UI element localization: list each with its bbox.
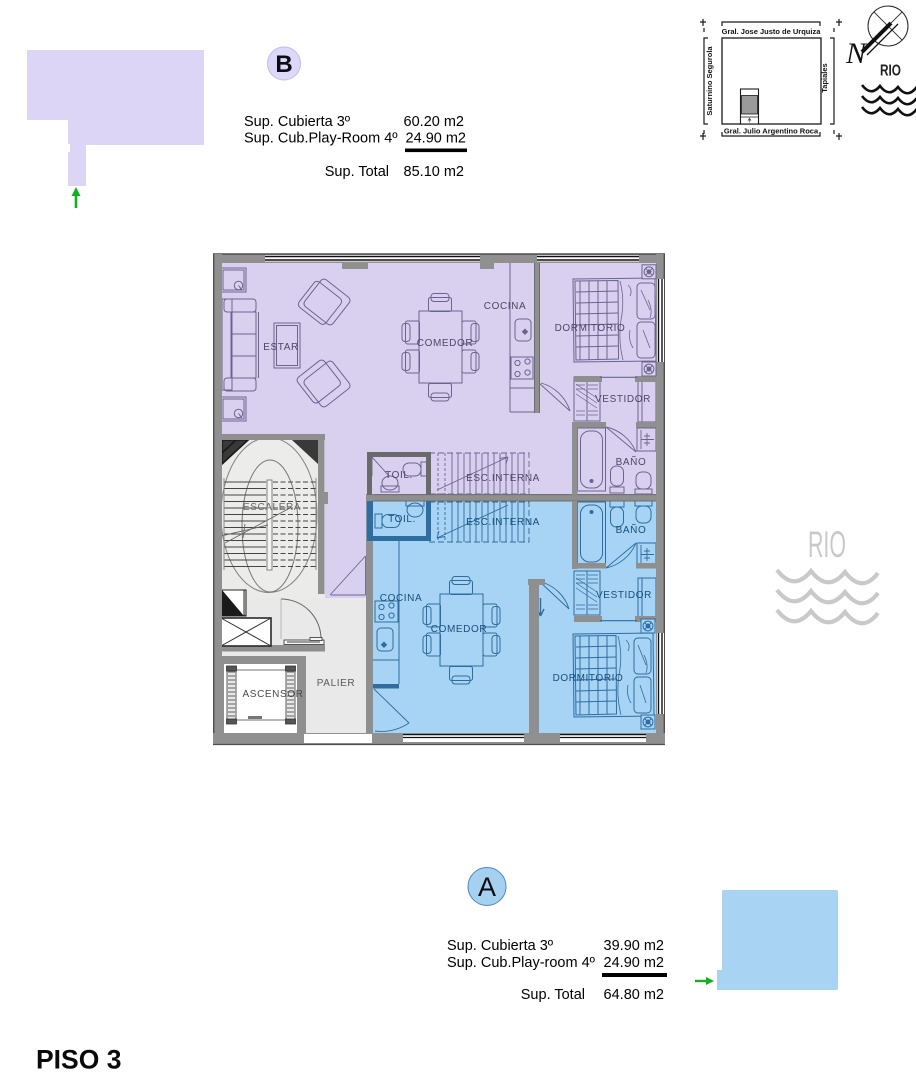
svg-text:PISO 3: PISO 3: [36, 1045, 121, 1075]
svg-text:Gral. Jose Justo de Urquiza: Gral. Jose Justo de Urquiza: [722, 27, 822, 36]
svg-text:ESTAR: ESTAR: [263, 342, 299, 353]
svg-text:BAÑO: BAÑO: [616, 523, 647, 536]
svg-text:24.90 m2: 24.90 m2: [604, 955, 664, 971]
svg-text:VESTIDOR: VESTIDOR: [596, 590, 652, 601]
svg-text:85.10 m2: 85.10 m2: [404, 164, 464, 180]
svg-text:ESC.INTERNA: ESC.INTERNA: [466, 517, 540, 528]
svg-text:ASCENSOR: ASCENSOR: [243, 689, 304, 700]
svg-text:Sup. Total: Sup. Total: [325, 164, 389, 180]
svg-text:Gral. Julio Argentino Roca: Gral. Julio Argentino Roca: [724, 127, 819, 136]
svg-text:Sup. Cubierta 3º: Sup. Cubierta 3º: [447, 938, 554, 954]
svg-text:RIO: RIO: [880, 63, 901, 80]
svg-text:PALIER: PALIER: [317, 678, 355, 689]
svg-text:ESC.INTERNA: ESC.INTERNA: [466, 473, 540, 484]
svg-text:RIO: RIO: [808, 524, 846, 565]
svg-text:DORMITORIO: DORMITORIO: [555, 323, 626, 334]
svg-text:VESTIDOR: VESTIDOR: [595, 394, 651, 405]
svg-text:Sup. Total: Sup. Total: [521, 987, 585, 1003]
svg-text:A: A: [478, 872, 496, 902]
svg-text:COMEDOR: COMEDOR: [431, 624, 487, 635]
svg-text:Sup. Cub.Play-Room 4º: Sup. Cub.Play-Room 4º: [244, 131, 398, 147]
svg-text:TOIL.: TOIL.: [388, 514, 416, 525]
svg-text:39.90 m2: 39.90 m2: [604, 938, 664, 954]
svg-text:Saturnino Segurola: Saturnino Segurola: [705, 46, 714, 116]
svg-text:Sup. Cub.Play-room 4º: Sup. Cub.Play-room 4º: [447, 955, 596, 971]
svg-text:N: N: [845, 37, 868, 70]
svg-text:24.90 m2: 24.90 m2: [406, 131, 466, 147]
svg-text:COMEDOR: COMEDOR: [417, 338, 473, 349]
svg-text:DORMITORIO: DORMITORIO: [553, 673, 624, 684]
svg-text:60.20 m2: 60.20 m2: [404, 114, 464, 130]
svg-text:Sup. Cubierta 3º: Sup. Cubierta 3º: [244, 114, 351, 130]
svg-text:ESCALERA: ESCALERA: [243, 502, 301, 513]
svg-text:64.80 m2: 64.80 m2: [604, 987, 664, 1003]
svg-text:Tapiales: Tapiales: [820, 63, 829, 92]
svg-text:BAÑO: BAÑO: [616, 455, 647, 468]
svg-text:COCINA: COCINA: [380, 593, 423, 604]
svg-text:TOIL.: TOIL.: [385, 470, 413, 481]
svg-text:COCINA: COCINA: [484, 301, 527, 312]
svg-text:B: B: [275, 51, 292, 78]
